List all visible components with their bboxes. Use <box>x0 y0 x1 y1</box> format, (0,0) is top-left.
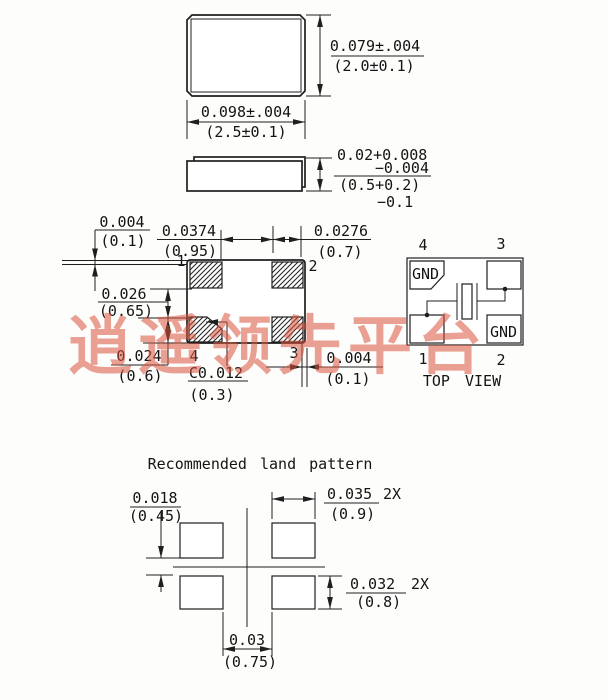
schematic-pin-4: 4 <box>418 236 427 254</box>
dim-col-gap-mm: (0.75) <box>223 653 277 671</box>
package-outline <box>187 15 305 96</box>
dim-offset-top-inch: 0.004 <box>99 213 144 231</box>
dim-offset-right-mm: (0.1) <box>325 370 370 388</box>
dim-land-pad-width: 0.035 2X (0.9) <box>272 485 401 523</box>
dim-gap-x-inch: 0.0374 <box>162 222 216 240</box>
dim-pad-height-inch: 0.024 <box>116 347 161 365</box>
top-view-caption: TOP VIEW <box>423 372 502 390</box>
dim-row-gap-inch: 0.018 <box>132 489 177 507</box>
pin-label-2: 2 <box>308 257 317 275</box>
dim-package-height: 0.079±.004 (2.0±0.1) <box>306 15 424 96</box>
dim-land-row-gap: 0.018 (0.45) <box>129 489 183 592</box>
schematic-pin-1: 1 <box>418 350 427 368</box>
dim-width-mm: (2.5±0.1) <box>205 123 286 141</box>
dim-chamfer-mm: (0.3) <box>189 386 234 404</box>
pad-2 <box>272 262 303 288</box>
dim-thickness-inch-2: −0.004 <box>375 159 429 177</box>
dim-land-pad-height: 0.032 2X (0.8) <box>318 575 429 611</box>
dim-row-gap-mm: (0.45) <box>129 507 183 525</box>
dim-gap-x-mm: (0.95) <box>163 242 217 260</box>
dim-pad-width-mm: (0.7) <box>317 243 362 261</box>
pad-1 <box>190 262 222 288</box>
land-pattern-view: Recommended land pattern 0.018 (0.45) 0.… <box>129 455 429 671</box>
dim-chamfer-inch: C0.012 <box>189 364 243 382</box>
schematic-pad-1 <box>410 315 444 343</box>
component-dimension-drawing: 0.079±.004 (2.0±0.1) 0.098±.004 (2.5±0.1… <box>0 0 607 700</box>
dim-land-pad-height-inch: 0.032 <box>350 575 395 593</box>
dim-package-thickness: 0.02+0.008 −0.004 (0.5+0.2) −0.1 <box>306 146 431 211</box>
schematic-pin-3: 3 <box>496 235 505 253</box>
gnd-label-bottom: GND <box>490 323 517 341</box>
land-pad-top-left <box>180 523 223 558</box>
package-bottom-view: 1 2 3 4 0.004 (0.1) 0.0374 (0.95) <box>62 213 383 404</box>
dim-land-col-gap: 0.03 (0.75) <box>223 612 277 671</box>
dim-land-pad-width-inch: 0.035 <box>327 485 372 503</box>
schematic-pad-3 <box>487 261 521 289</box>
dim-offset-right-inch: 0.004 <box>326 349 371 367</box>
dim-edge-offset-right: 0.004 (0.1) <box>266 344 383 388</box>
dim-pad-width-inch: 0.0276 <box>314 222 368 240</box>
pin-label-4: 4 <box>189 347 198 365</box>
schematic-pin-2: 2 <box>496 351 505 369</box>
dim-thickness-mm-1: (0.5+0.2) <box>339 176 420 194</box>
package-body <box>187 161 302 191</box>
land-pad-top-right <box>272 523 315 558</box>
dim-height-inch: 0.079±.004 <box>330 37 420 55</box>
schematic-top-view: 4 3 GND GND 1 2 TOP VIEW <box>407 235 523 390</box>
package-outline-view: 0.079±.004 (2.0±0.1) 0.098±.004 (2.5±0.1… <box>187 15 424 141</box>
dim-pad-height-mm: (0.6) <box>117 367 162 385</box>
dim-width-inch: 0.098±.004 <box>201 103 291 121</box>
dim-col-gap-inch: 0.03 <box>229 631 265 649</box>
dim-offset-top-mm: (0.1) <box>100 232 145 250</box>
dim-height-mm: (2.0±0.1) <box>333 57 414 75</box>
dim-gap-y-inch: 0.026 <box>101 285 146 303</box>
dim-pad-gap-and-height: 0.026 (0.65) 0.024 (0.6) <box>98 285 192 385</box>
pad-3 <box>272 317 303 342</box>
pin-label-3: 3 <box>289 344 298 362</box>
land-pattern-title: Recommended land pattern <box>148 455 373 473</box>
dim-land-pad-height-mm: (0.8) <box>356 593 401 611</box>
dim-pad-pitch-and-width: 0.0374 (0.95) 0.0276 (0.7) <box>157 222 371 261</box>
dim-land-pad-height-qty: 2X <box>411 575 429 593</box>
dim-gap-y-mm: (0.65) <box>99 302 153 320</box>
drawing-canvas: 0.079±.004 (2.0±0.1) 0.098±.004 (2.5±0.1… <box>0 0 607 700</box>
dim-land-pad-width-mm: (0.9) <box>330 505 375 523</box>
dim-land-pad-width-qty: 2X <box>383 485 401 503</box>
gnd-label-top: GND <box>412 265 439 283</box>
junction-dot <box>503 287 508 292</box>
land-pad-bottom-right <box>272 576 315 609</box>
dim-package-width: 0.098±.004 (2.5±0.1) <box>187 100 305 141</box>
package-side-view: 0.02+0.008 −0.004 (0.5+0.2) −0.1 <box>187 146 431 211</box>
dim-thickness-mm-2: −0.1 <box>377 193 413 211</box>
junction-dot <box>425 313 430 318</box>
land-pad-bottom-left <box>180 576 223 609</box>
